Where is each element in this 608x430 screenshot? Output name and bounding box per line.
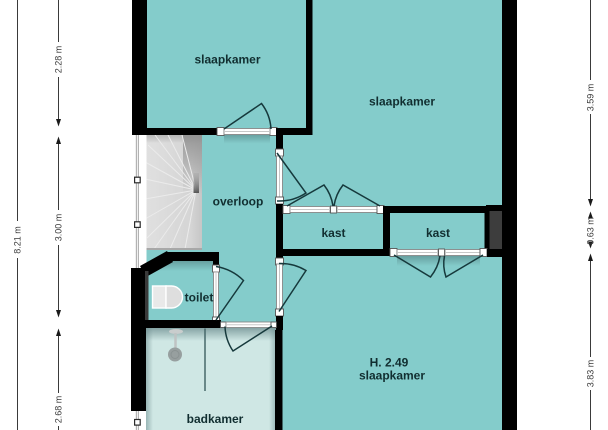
svg-text:overloop: overloop <box>213 195 264 209</box>
svg-text:3.83 m: 3.83 m <box>586 360 596 388</box>
svg-text:2.68 m: 2.68 m <box>54 396 64 424</box>
svg-text:slaapkamer: slaapkamer <box>194 53 260 67</box>
svg-text:kast: kast <box>426 226 450 240</box>
svg-text:3.00 m: 3.00 m <box>54 214 64 242</box>
svg-text:slaapkamer: slaapkamer <box>359 369 425 383</box>
svg-text:toilet: toilet <box>185 291 214 305</box>
svg-text:0.63 m: 0.63 m <box>586 217 596 245</box>
svg-text:2.28 m: 2.28 m <box>54 46 64 74</box>
svg-text:badkamer: badkamer <box>187 412 244 426</box>
svg-text:kast: kast <box>321 226 345 240</box>
svg-text:H. 2.49: H. 2.49 <box>370 356 409 370</box>
svg-text:3.59 m: 3.59 m <box>586 84 596 112</box>
svg-text:8.21 m: 8.21 m <box>13 226 23 254</box>
svg-text:slaapkamer: slaapkamer <box>369 95 435 109</box>
